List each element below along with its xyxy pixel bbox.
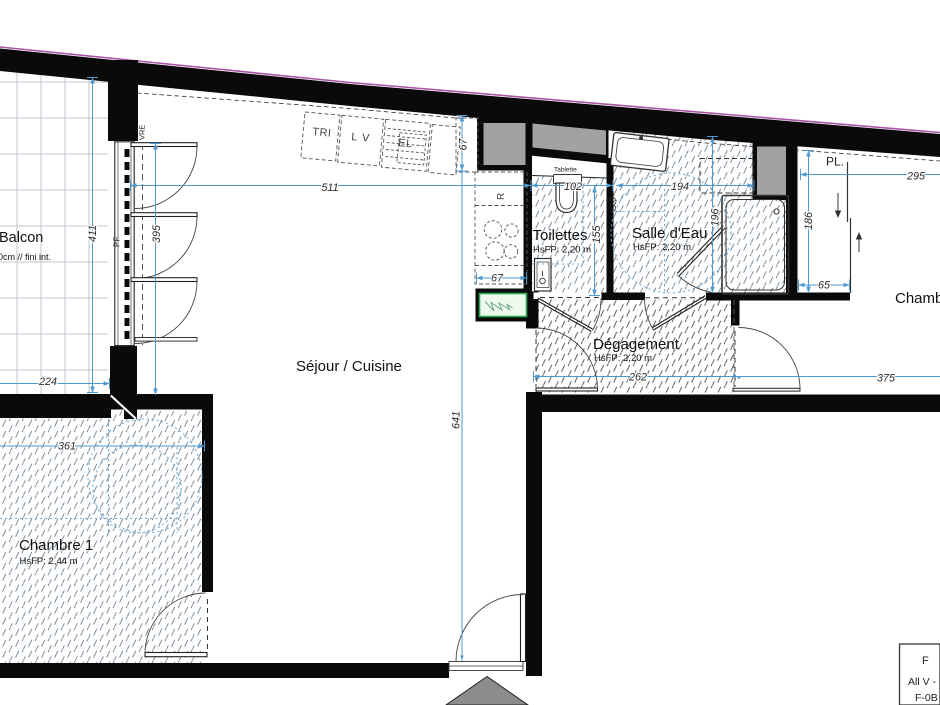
svg-text:EL: EL: [398, 137, 413, 150]
svg-text:HsFP: 2,20 m: HsFP: 2,20 m: [633, 242, 691, 253]
svg-text:Dégagement: Dégagement: [593, 336, 680, 353]
svg-text:HsFP: 2,44 m: HsFP: 2,44 m: [20, 556, 78, 567]
svg-text:L V: L V: [351, 131, 371, 145]
svg-text:VRE: VRE: [138, 125, 147, 140]
svg-text:All V - N: All V - N: [908, 676, 940, 688]
svg-text:262: 262: [628, 372, 647, 384]
svg-text:Tablette: Tablette: [554, 167, 577, 174]
svg-text:Séjour / Cuisine: Séjour / Cuisine: [296, 358, 402, 375]
svg-text:295: 295: [906, 171, 926, 183]
svg-text:186: 186: [803, 212, 815, 230]
svg-text:67: 67: [458, 138, 470, 151]
svg-text:511: 511: [321, 182, 338, 194]
svg-text:641: 641: [451, 411, 463, 429]
svg-text:224: 224: [38, 376, 57, 388]
svg-text:194: 194: [671, 181, 689, 193]
svg-text:HsFP: 2,20 m: HsFP: 2,20 m: [533, 245, 591, 256]
svg-text:0cm // fini int.: 0cm // fini int.: [0, 252, 51, 262]
svg-text:F: F: [922, 655, 929, 667]
svg-text:196: 196: [710, 208, 722, 226]
svg-text:Chambre 2: Chambre 2: [895, 290, 940, 307]
svg-text:Toilettes: Toilettes: [533, 227, 588, 244]
svg-text:R: R: [496, 193, 507, 200]
svg-text:395: 395: [151, 224, 163, 243]
svg-text:375: 375: [877, 373, 896, 385]
svg-text:HsFP: 2,20 m: HsFP: 2,20 m: [594, 353, 652, 364]
svg-text:F-0B: F-0B: [915, 692, 938, 704]
svg-text:155: 155: [591, 224, 603, 243]
svg-text:PF: PF: [113, 237, 122, 247]
svg-text:65: 65: [818, 280, 831, 292]
svg-text:Balcon: Balcon: [0, 230, 43, 246]
svg-text:67: 67: [491, 273, 504, 285]
svg-text:C.0: C.0: [608, 197, 618, 211]
svg-text:TRI: TRI: [312, 126, 332, 140]
svg-text:361: 361: [58, 441, 76, 453]
svg-text:Salle d'Eau: Salle d'Eau: [632, 225, 707, 242]
svg-text:PL.: PL.: [826, 155, 844, 169]
svg-text:411: 411: [87, 225, 99, 242]
svg-text:Chambre 1: Chambre 1: [19, 537, 93, 554]
svg-text:102: 102: [564, 181, 582, 193]
